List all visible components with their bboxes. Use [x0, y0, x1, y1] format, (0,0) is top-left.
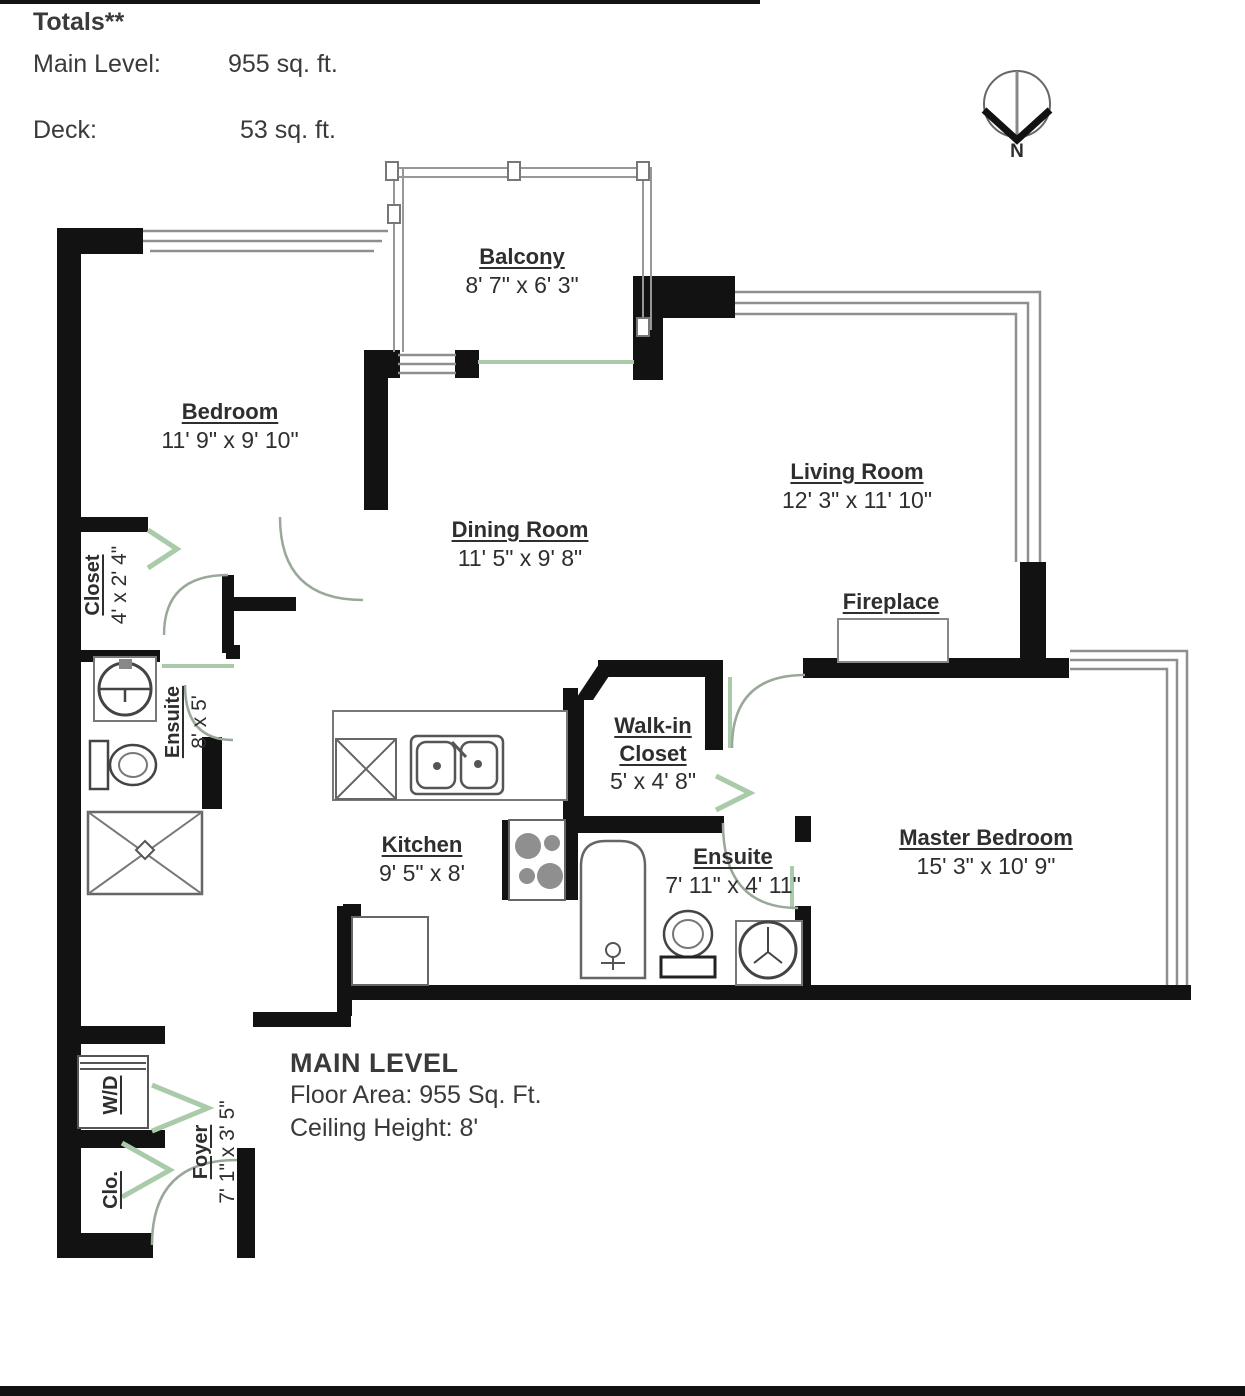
kitchen-sink-icon: [411, 736, 503, 794]
walkin-name-line1: Walk-in: [553, 712, 753, 740]
living-room-dims: 12' 3" x 11' 10": [707, 486, 1007, 516]
room-label-kitchen: Kitchen 9' 5" x 8': [272, 831, 572, 888]
deck-label: Deck:: [33, 116, 97, 145]
kitchen-name: Kitchen: [272, 831, 572, 859]
room-label-dining-room: Dining Room 11' 5" x 9' 8": [370, 516, 670, 573]
totals-heading: Totals**: [33, 8, 124, 37]
level-name: MAIN LEVEL: [290, 1048, 542, 1079]
foyer-closet-bifold: [122, 1143, 170, 1197]
master-sink-icon: [736, 921, 802, 985]
ceiling-height-text: Ceiling Height: 8': [290, 1112, 542, 1145]
master-toilet-icon: [661, 911, 715, 977]
foyer-dims: 7' 1" x 3' 5": [214, 1077, 241, 1227]
main-level-label: Main Level:: [33, 50, 161, 79]
living-room-name: Living Room: [707, 458, 1007, 486]
bedroom-door-arc: [280, 517, 363, 600]
dining-room-name: Dining Room: [370, 516, 670, 544]
kitchen-dims: 9' 5" x 8': [272, 859, 572, 889]
room-label-bedroom: Bedroom 11' 9" x 9' 10": [80, 398, 380, 455]
master-bedroom-dims: 15' 3" x 10' 9": [836, 852, 1136, 882]
ensuite-toilet-icon: [90, 741, 156, 789]
foyer-name: Foyer: [189, 1077, 214, 1227]
bedroom-dims: 11' 9" x 9' 10": [80, 426, 380, 456]
fireplace-box: [838, 619, 948, 662]
shower-icon: [88, 812, 202, 894]
floor-area-text: Floor Area: 955 Sq. Ft.: [290, 1079, 542, 1112]
dining-room-dims: 11' 5" x 9' 8": [370, 544, 670, 574]
balcony-name: Balcony: [372, 243, 672, 271]
room-label-walk-in-closet: Walk-in Closet 5' x 4' 8": [553, 712, 753, 797]
room-label-living-room: Living Room 12' 3" x 11' 10": [707, 458, 1007, 515]
ensuite-dims: 8' x 5': [186, 657, 213, 787]
room-label-ensuite: Ensuite 8' x 5': [161, 657, 219, 787]
room-label-foyer-closet: Clo.: [99, 1150, 125, 1230]
closet-dims: 4' x 2' 4": [106, 515, 133, 655]
master-bedroom-name: Master Bedroom: [836, 824, 1136, 852]
room-label-master-bedroom: Master Bedroom 15' 3" x 10' 9": [836, 824, 1136, 881]
room-label-balcony: Balcony 8' 7" x 6' 3": [372, 243, 672, 300]
balcony-dims: 8' 7" x 6' 3": [372, 271, 672, 301]
kitchen-fridge-icon: [352, 917, 428, 985]
deck-value: 53 sq. ft.: [240, 116, 336, 145]
ensuite-name: Ensuite: [161, 657, 186, 787]
compass-icon: [984, 71, 1050, 140]
foyer-closet-name: Clo.: [99, 1150, 124, 1230]
bedroom-name: Bedroom: [80, 398, 380, 426]
compass-north-label: N: [1003, 141, 1031, 163]
room-label-foyer: Foyer 7' 1" x 3' 5": [189, 1077, 247, 1227]
room-label-wd: W/D: [99, 1055, 125, 1135]
wd-name: W/D: [99, 1055, 124, 1135]
fireplace-name: Fireplace: [741, 588, 1041, 616]
bedroom-closet-bifold: [148, 530, 177, 568]
ensuite-sink-icon: [94, 657, 156, 721]
room-label-closet: Closet 4' x 2' 4": [81, 515, 139, 655]
floor-plan-page: Totals** Main Level: 955 sq. ft. Deck: 5…: [0, 0, 1245, 1396]
closet-name: Closet: [81, 515, 106, 655]
room-label-fireplace: Fireplace: [741, 588, 1041, 616]
main-level-value: 955 sq. ft.: [228, 50, 338, 79]
main-level-summary: MAIN LEVEL Floor Area: 955 Sq. Ft. Ceili…: [290, 1048, 542, 1144]
walkin-dims: 5' x 4' 8": [553, 767, 753, 797]
hall-door-arc: [164, 575, 228, 635]
walkin-name-line2: Closet: [553, 740, 753, 768]
